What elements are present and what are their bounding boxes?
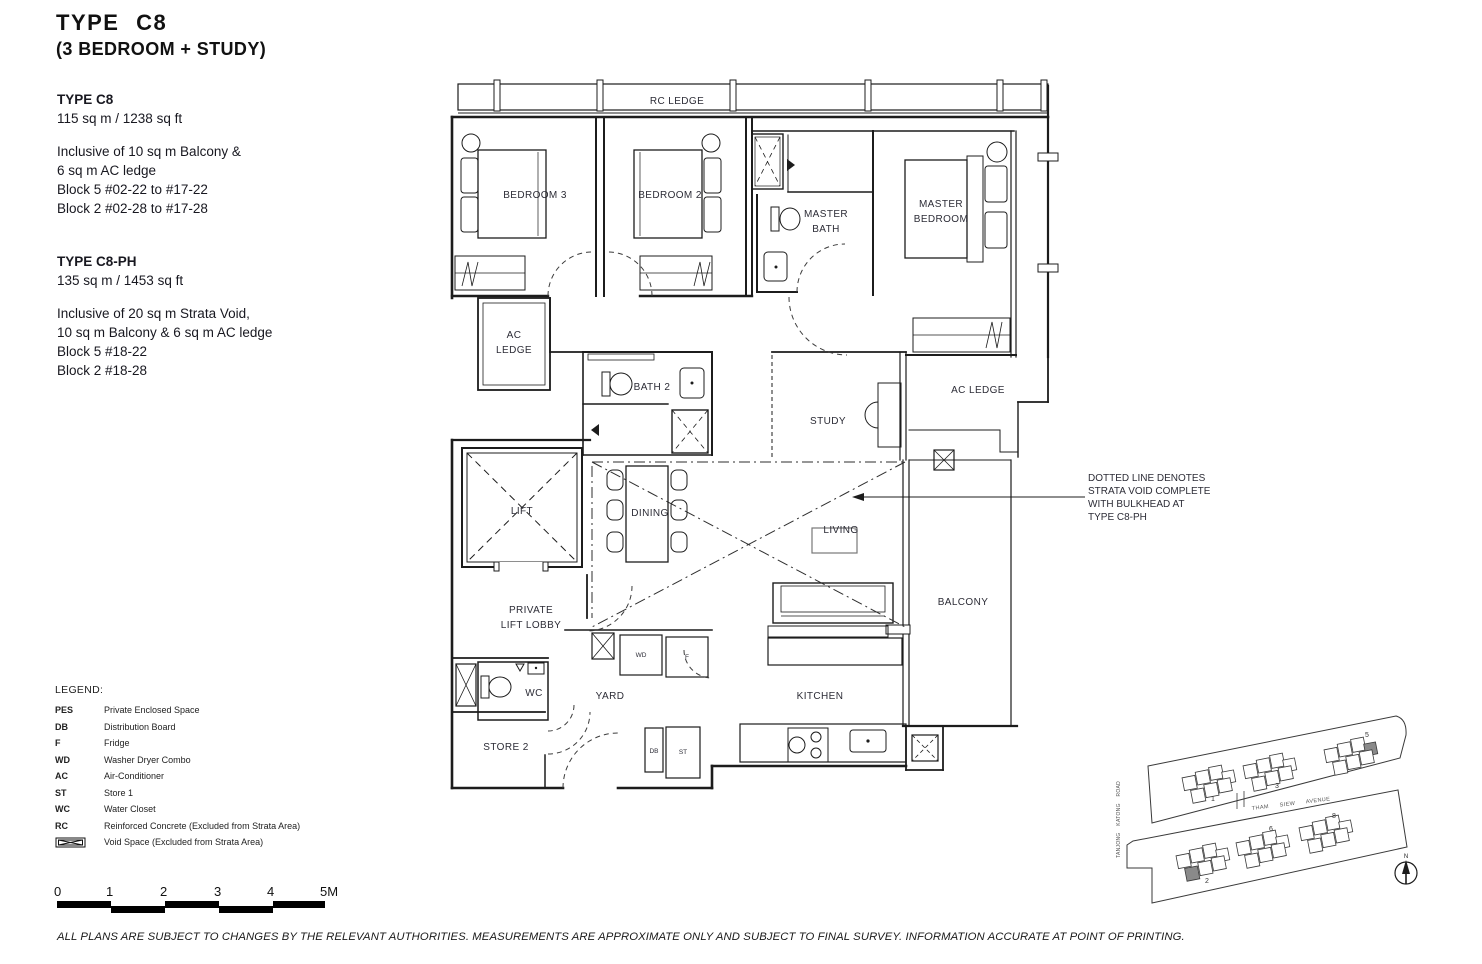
room-label-dining: DINING bbox=[631, 508, 668, 519]
info-line: Block 5 #18-22 bbox=[57, 342, 272, 361]
strata-void-lines bbox=[592, 462, 905, 627]
north-compass-icon: N bbox=[1395, 854, 1417, 884]
bath2-fixtures bbox=[591, 368, 708, 453]
info-line: Inclusive of 20 sq m Strata Void, bbox=[57, 304, 272, 323]
room-label-store2: STORE 2 bbox=[483, 742, 528, 753]
disclaimer-text: ALL PLANS ARE SUBJECT TO CHANGES BY THE … bbox=[57, 931, 1187, 943]
floor-plan: WD F DB ST RC LEDGE BEDROOM 3 BEDROOM 2 … bbox=[440, 70, 1482, 810]
info-block-type-c8: TYPE C8 115 sq m / 1238 sq ft Inclusive … bbox=[57, 90, 241, 218]
legend-row-void: Void Space (Excluded from Strata Area) bbox=[55, 837, 300, 854]
room-label-bedroom3: BEDROOM 3 bbox=[503, 190, 567, 201]
legend-row: FFridge bbox=[55, 738, 300, 755]
legend-title: LEGEND: bbox=[55, 684, 300, 696]
legend-desc: Store 1 bbox=[104, 788, 133, 798]
legend-row: STStore 1 bbox=[55, 788, 300, 805]
scale-bar: 0 1 2 3 4 5M bbox=[57, 884, 337, 913]
road-label-tham-siew-avenue: THAM SIEW AVENUE bbox=[1252, 796, 1331, 812]
info-line: Block 2 #02-28 to #17-28 bbox=[57, 199, 241, 218]
block-label-2: 2 bbox=[1205, 878, 1209, 885]
void-space-symbol bbox=[55, 837, 104, 851]
legend-row: WDWasher Dryer Combo bbox=[55, 755, 300, 772]
type-heading: TYPE C8-PH bbox=[57, 252, 272, 271]
annotation-line: TYPE C8-PH bbox=[1088, 512, 1147, 523]
legend-row: WCWater Closet bbox=[55, 804, 300, 821]
legend-desc: Distribution Board bbox=[104, 722, 176, 732]
scale-label: 0 bbox=[54, 884, 61, 899]
info-line: Block 5 #02-22 to #17-22 bbox=[57, 180, 241, 199]
block-label-3: 3 bbox=[1275, 783, 1279, 790]
room-label-yard: YARD bbox=[596, 691, 625, 702]
room-label-bath2: BATH 2 bbox=[634, 382, 671, 393]
scale-label: 4 bbox=[267, 884, 274, 899]
study-furniture bbox=[772, 355, 901, 460]
wd-label: WD bbox=[636, 652, 647, 659]
rc-ledge-band bbox=[458, 80, 1048, 113]
site-plan: 1 3 5 2 6 8 THAM SIEW AVENUE TANJONG KAT… bbox=[1090, 705, 1482, 905]
room-label-balcony: BALCONY bbox=[938, 597, 989, 608]
page-title: TYPE C8 bbox=[56, 10, 167, 36]
block-label-1: 1 bbox=[1211, 796, 1215, 803]
scale-label: 5M bbox=[320, 884, 338, 899]
legend-desc: Air-Conditioner bbox=[104, 771, 164, 781]
annotation-line: WITH BULKHEAD AT bbox=[1088, 499, 1185, 510]
st-label: ST bbox=[679, 749, 687, 756]
legend-row: DBDistribution Board bbox=[55, 722, 300, 739]
door-arcs bbox=[548, 244, 847, 788]
room-label-master-bath: MASTER bbox=[804, 209, 848, 220]
room-label-master-bath: BATH bbox=[812, 224, 840, 235]
block-label-6: 6 bbox=[1269, 826, 1273, 833]
living-furniture bbox=[768, 528, 893, 637]
scale-label: 2 bbox=[160, 884, 167, 899]
info-line: 10 sq m Balcony & 6 sq m AC ledge bbox=[57, 323, 272, 342]
site-cluster-8 bbox=[1298, 813, 1355, 854]
info-line: Block 2 #18-28 bbox=[57, 361, 272, 380]
type-area: 135 sq m / 1453 sq ft bbox=[57, 271, 272, 290]
room-label-master-bedroom: MASTER bbox=[919, 199, 963, 210]
strata-void-annotation: DOTTED LINE DENOTES STRATA VOID COMPLETE… bbox=[852, 473, 1211, 523]
block-label-5: 5 bbox=[1365, 732, 1369, 739]
info-line: Inclusive of 10 sq m Balcony & bbox=[57, 142, 241, 161]
master-bath-fixtures bbox=[752, 134, 800, 281]
site-cluster-6 bbox=[1235, 828, 1292, 869]
legend: LEGEND: PESPrivate Enclosed Space DBDist… bbox=[55, 684, 300, 854]
db-label: DB bbox=[649, 748, 658, 755]
room-label-kitchen: KITCHEN bbox=[797, 691, 844, 702]
legend-abbr: PES bbox=[55, 705, 104, 715]
bedroom3-furniture bbox=[455, 134, 546, 290]
room-label-ac-ledge-right: AC LEDGE bbox=[951, 385, 1005, 396]
legend-desc: Fridge bbox=[104, 738, 130, 748]
legend-abbr: WD bbox=[55, 755, 104, 765]
road-label-tanjong-katong-road: TANJONG KATONG ROAD bbox=[1116, 781, 1122, 858]
type-heading: TYPE C8 bbox=[57, 90, 241, 109]
scale-label: 1 bbox=[106, 884, 113, 899]
legend-desc: Washer Dryer Combo bbox=[104, 755, 191, 765]
room-label-wc: WC bbox=[525, 688, 542, 699]
annotation-line: STRATA VOID COMPLETE bbox=[1088, 486, 1211, 497]
legend-row: RCReinforced Concrete (Excluded from Str… bbox=[55, 821, 300, 838]
annotation-line: DOTTED LINE DENOTES bbox=[1088, 473, 1206, 484]
legend-abbr: DB bbox=[55, 722, 104, 732]
room-label-ac-ledge-left: AC bbox=[507, 330, 522, 341]
scale-bar-segments bbox=[57, 899, 337, 913]
site-cluster-2 bbox=[1175, 841, 1232, 882]
master-bedroom-furniture bbox=[905, 142, 1010, 352]
bedroom2-furniture bbox=[634, 134, 721, 290]
info-block-type-c8-ph: TYPE C8-PH 135 sq m / 1453 sq ft Inclusi… bbox=[57, 252, 272, 380]
room-label-private-lift-lobby: PRIVATE bbox=[509, 605, 553, 616]
scale-label: 3 bbox=[214, 884, 221, 899]
room-label-master-bedroom: BEDROOM bbox=[914, 214, 968, 225]
type-area: 115 sq m / 1238 sq ft bbox=[57, 109, 241, 128]
legend-row: ACAir-Conditioner bbox=[55, 771, 300, 788]
legend-row: PESPrivate Enclosed Space bbox=[55, 705, 300, 722]
legend-desc: Private Enclosed Space bbox=[104, 705, 200, 715]
site-cluster-1 bbox=[1181, 763, 1238, 804]
legend-desc: Void Space (Excluded from Strata Area) bbox=[104, 837, 263, 847]
room-label-living: LIVING bbox=[823, 525, 858, 536]
info-line: 6 sq m AC ledge bbox=[57, 161, 241, 180]
page-subtitle: (3 BEDROOM + STUDY) bbox=[56, 39, 266, 60]
room-label-rc-ledge: RC LEDGE bbox=[650, 96, 704, 107]
room-label-ac-ledge-left: LEDGE bbox=[496, 345, 532, 356]
legend-abbr: WC bbox=[55, 804, 104, 814]
room-label-lift: LIFT bbox=[511, 506, 533, 517]
appliance-boxes bbox=[620, 635, 708, 778]
block-label-8: 8 bbox=[1332, 813, 1336, 820]
legend-abbr: AC bbox=[55, 771, 104, 781]
room-label-bedroom2: BEDROOM 2 bbox=[638, 190, 702, 201]
legend-abbr: RC bbox=[55, 821, 104, 831]
legend-desc: Water Closet bbox=[104, 804, 156, 814]
legend-abbr: F bbox=[55, 738, 104, 748]
room-label-study: STUDY bbox=[810, 416, 846, 427]
room-label-private-lift-lobby: LIFT LOBBY bbox=[501, 620, 562, 631]
legend-abbr: ST bbox=[55, 788, 104, 798]
legend-desc: Reinforced Concrete (Excluded from Strat… bbox=[104, 821, 300, 831]
compass-north-label: N bbox=[1404, 854, 1408, 860]
